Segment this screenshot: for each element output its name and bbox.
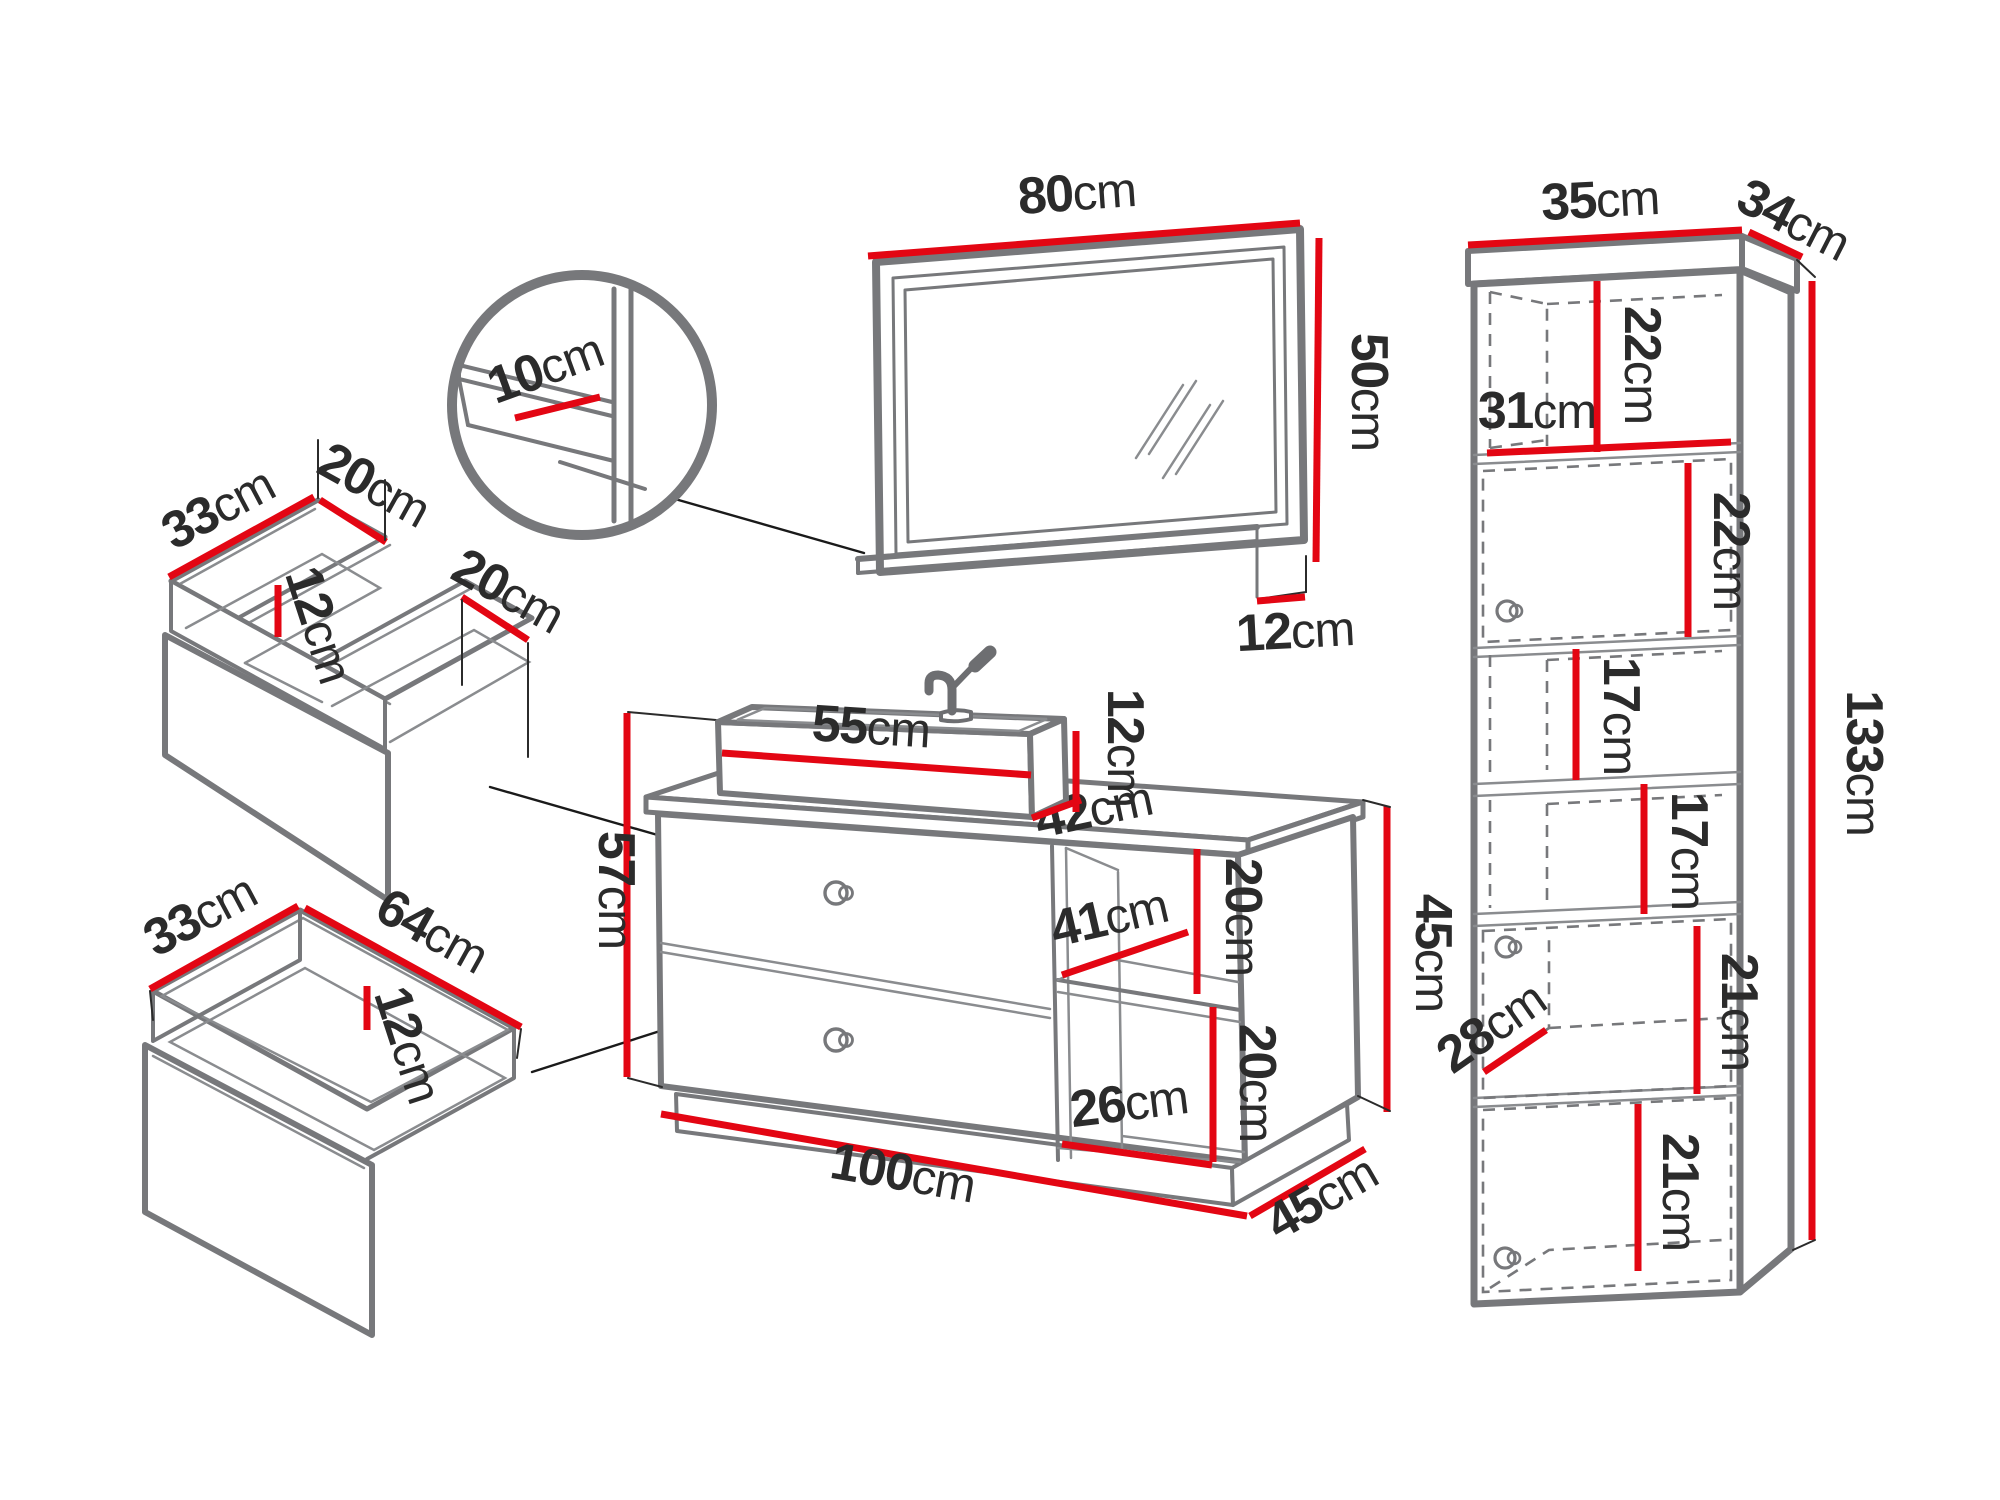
diagram-page: 80cm 50cm 12cm 10cm bbox=[0, 0, 2000, 1500]
dim-mirror-shelf-step: 12cm bbox=[1235, 599, 1356, 663]
dim-tdrawer-depth: 33cm bbox=[152, 455, 284, 562]
dim-cabinet-shelf1-height: 17cm bbox=[1592, 657, 1650, 775]
dim-bdrawer-height: 12cm bbox=[362, 980, 454, 1110]
furniture-dimension-diagram: 80cm 50cm 12cm 10cm bbox=[0, 0, 2000, 1500]
dim-mirror-height: 50cm bbox=[1340, 333, 1398, 451]
dim-niche1-height: 20cm bbox=[1214, 858, 1272, 976]
dim-vanity-total-height: 57cm bbox=[587, 831, 645, 949]
basin-side bbox=[1030, 719, 1066, 817]
dim-cabinet-interior-width: 31cm bbox=[1478, 382, 1596, 440]
dim-cabinet-opening1-height: 22cm bbox=[1613, 306, 1671, 424]
shelf-detail-callout: 10cm bbox=[452, 275, 712, 535]
dim-line-mirror-height bbox=[1316, 238, 1319, 562]
faucet-icon bbox=[929, 652, 990, 721]
tall-cabinet: 35cm 34cm 22cm 31cm 22cm 17cm 17cm 133cm… bbox=[1426, 167, 1893, 1304]
dim-niche2-height: 20cm bbox=[1228, 1024, 1286, 1142]
cabinet-side bbox=[1740, 270, 1791, 1292]
dim-vanity-side-height: 45cm bbox=[1404, 894, 1462, 1012]
dim-bdrawer-depth: 33cm bbox=[134, 862, 266, 969]
dim-cabinet-door1-height: 22cm bbox=[1702, 492, 1760, 610]
dim-line-mirror-shelf-step bbox=[1257, 597, 1305, 601]
dim-mirror-width: 80cm bbox=[1016, 160, 1138, 226]
dim-cabinet-door2-height: 21cm bbox=[1710, 953, 1768, 1071]
dim-basin-width: 55cm bbox=[810, 694, 931, 759]
dim-cabinet-shelf2-height: 17cm bbox=[1660, 792, 1718, 910]
dim-basin-height: 12cm bbox=[1096, 689, 1154, 807]
mirror-frame bbox=[876, 229, 1304, 572]
dim-cabinet-total-height: 133cm bbox=[1835, 690, 1893, 836]
dim-tdrawer-left-width: 20cm bbox=[309, 431, 440, 539]
bottom-drawer: 33cm 64cm 12cm bbox=[134, 862, 521, 1335]
dim-bdrawer-width: 64cm bbox=[367, 877, 498, 985]
mirror: 80cm 50cm 12cm bbox=[858, 160, 1398, 663]
dim-cabinet-door3-height: 21cm bbox=[1651, 1133, 1709, 1251]
shelf-step-extension-line bbox=[1258, 556, 1306, 599]
dim-cabinet-top-width: 35cm bbox=[1540, 168, 1661, 232]
